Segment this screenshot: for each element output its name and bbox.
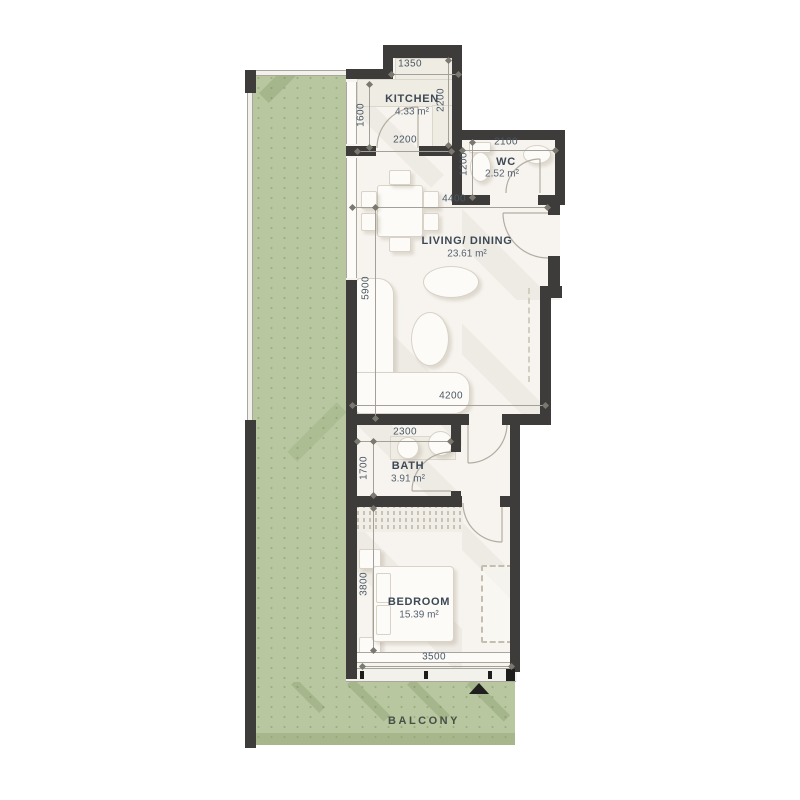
dim-line-living-depth: [375, 207, 376, 419]
dim-bath-width: 2300: [393, 427, 417, 438]
bedroom-label: BEDROOM: [388, 596, 450, 608]
dim-kitchen-width: 2200: [393, 135, 417, 146]
balcony-shade: [347, 682, 390, 722]
wc-label: WC: [496, 156, 516, 168]
dim-kitchen-window: 1600: [356, 103, 367, 127]
dim-line-living-bottom: [352, 405, 546, 406]
wall-balcony-left: [245, 420, 256, 748]
dim-line-wc-width: [462, 150, 556, 151]
coffee-table: [423, 266, 479, 298]
living-area: 23.61 m²: [447, 249, 486, 260]
dim-bedroom-depth: 3800: [359, 572, 370, 596]
wall-bedroom-entry-stub: [500, 496, 510, 507]
wc-area: 2.52 m²: [485, 169, 519, 180]
railing-post: [424, 671, 428, 679]
dining-chair: [389, 170, 411, 185]
balcony-shade: [291, 682, 325, 713]
dining-chair: [423, 213, 439, 231]
balcony-left-surface: [252, 73, 346, 745]
wall-east-mid: [548, 256, 560, 290]
balcony-label: BALCONY: [388, 715, 460, 727]
living-label: LIVING/ DINING: [421, 235, 512, 247]
dim-line-bedroom-depth: [373, 508, 374, 651]
curtain-wall-dashes: [528, 288, 530, 382]
dim-line-kitchen-depth: [448, 60, 449, 146]
dim-wc-width: 2100: [494, 137, 518, 148]
wall-bath-right-upper: [451, 425, 461, 452]
wall-east-upper-stub: [548, 203, 560, 215]
wall-east-lower: [540, 294, 551, 416]
wall-kitchen-top-left: [346, 69, 393, 79]
dim-living-bottom: 4200: [439, 391, 463, 402]
railing-post: [360, 671, 364, 679]
kitchen-area: 4.33 m²: [395, 107, 429, 118]
dim-line-bath-depth: [373, 441, 374, 496]
floor-shade: [462, 313, 542, 425]
railing-end-post: [506, 669, 515, 681]
dining-table: [377, 185, 423, 237]
wc-sink: [523, 145, 551, 164]
kitchen-label: KITCHEN: [385, 93, 439, 105]
dim-bedroom-width: 3500: [422, 652, 446, 663]
living-right-floor-lower: [462, 300, 542, 425]
balcony-shade: [259, 73, 297, 103]
balcony-door-marker: [469, 683, 489, 694]
wall-west: [346, 280, 357, 679]
wall-balcony-top-cap: [245, 70, 256, 93]
balcony-left-railing: [247, 72, 253, 420]
wall-bath-bottom: [346, 496, 462, 507]
wall-hall-top: [502, 414, 551, 425]
bath-area: 3.91 m²: [391, 474, 425, 485]
dim-line-wc-depth: [472, 142, 473, 198]
railing-post: [488, 671, 492, 679]
dim-kitchen-top: 1350: [398, 59, 422, 70]
wall-wc-right: [555, 130, 565, 205]
ottoman: [411, 312, 449, 366]
balcony-shade: [287, 402, 346, 461]
balcony-edge-band: [252, 733, 515, 745]
dim-living-width: 4400: [442, 194, 466, 205]
dim-line-living-width: [352, 207, 548, 208]
dining-chair: [389, 237, 411, 252]
balcony-top-railing: [252, 70, 346, 76]
bedroom-cabinet: [481, 565, 513, 643]
bath-label: BATH: [392, 460, 425, 472]
wall-bedroom-right: [510, 425, 520, 672]
dim-bath-depth: 1700: [359, 456, 370, 480]
bedroom-area: 15.39 m²: [399, 610, 438, 621]
wall-kitchen-right: [452, 45, 462, 205]
floor-plan: 1350 1600 2200 2200 2100 1200 4400 5900 …: [0, 0, 800, 800]
dim-line-kitchen-window: [369, 84, 370, 148]
dim-line-kitchen-width: [357, 151, 452, 152]
dim-living-depth: 5900: [361, 276, 372, 300]
wall-kitchen-notch-top: [383, 45, 462, 58]
bed-pillow: [376, 605, 391, 635]
living-window: [346, 158, 357, 278]
dim-line-bedroom-width: [362, 666, 512, 667]
wall-bath-top: [346, 414, 462, 425]
dim-wc-depth: 1200: [459, 152, 470, 176]
